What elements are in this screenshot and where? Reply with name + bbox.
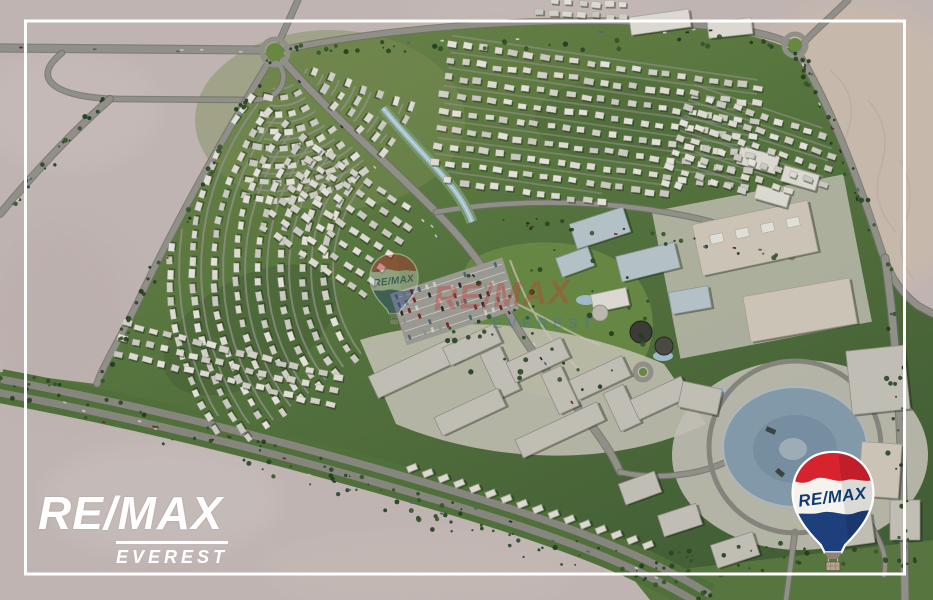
watermark-line2: EVEREST: [492, 315, 597, 332]
agency-name: RE/MAX: [38, 490, 228, 536]
agency-subname-rule: EVEREST: [116, 541, 228, 568]
watermark-line1: RE/MAX: [432, 273, 573, 318]
agency-logo: RE/MAX EVEREST: [38, 490, 228, 568]
agency-subname: EVEREST: [116, 547, 228, 568]
masterplan-render: RE/MAX: [0, 0, 933, 600]
